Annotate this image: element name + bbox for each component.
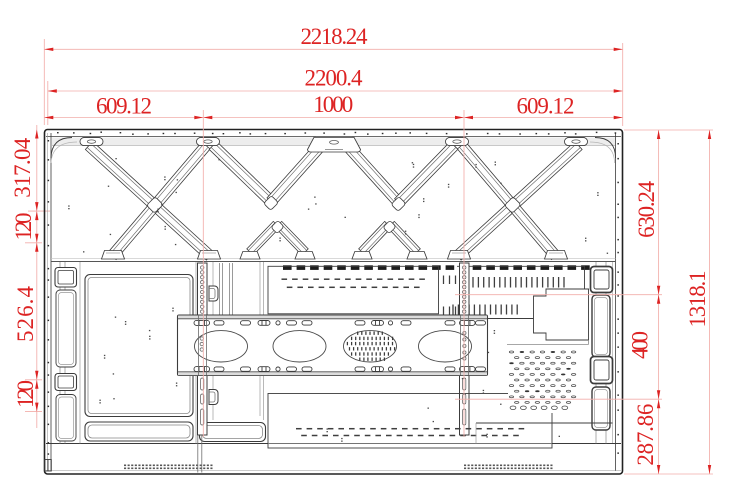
- svg-text:2200.4: 2200.4: [305, 66, 364, 91]
- svg-text:609.12: 609.12: [96, 94, 152, 119]
- svg-text:1318.1: 1318.1: [685, 271, 710, 328]
- svg-text:400: 400: [628, 331, 653, 359]
- svg-text:120: 120: [13, 380, 38, 408]
- svg-text:526.4: 526.4: [13, 286, 38, 343]
- svg-text:609.12: 609.12: [517, 94, 575, 119]
- svg-text:1000: 1000: [313, 92, 353, 117]
- svg-text:317.04: 317.04: [10, 137, 35, 198]
- svg-text:120: 120: [11, 213, 36, 241]
- svg-text:630.24: 630.24: [634, 180, 659, 238]
- svg-text:2218.24: 2218.24: [301, 24, 369, 49]
- svg-text:287.86: 287.86: [633, 404, 658, 466]
